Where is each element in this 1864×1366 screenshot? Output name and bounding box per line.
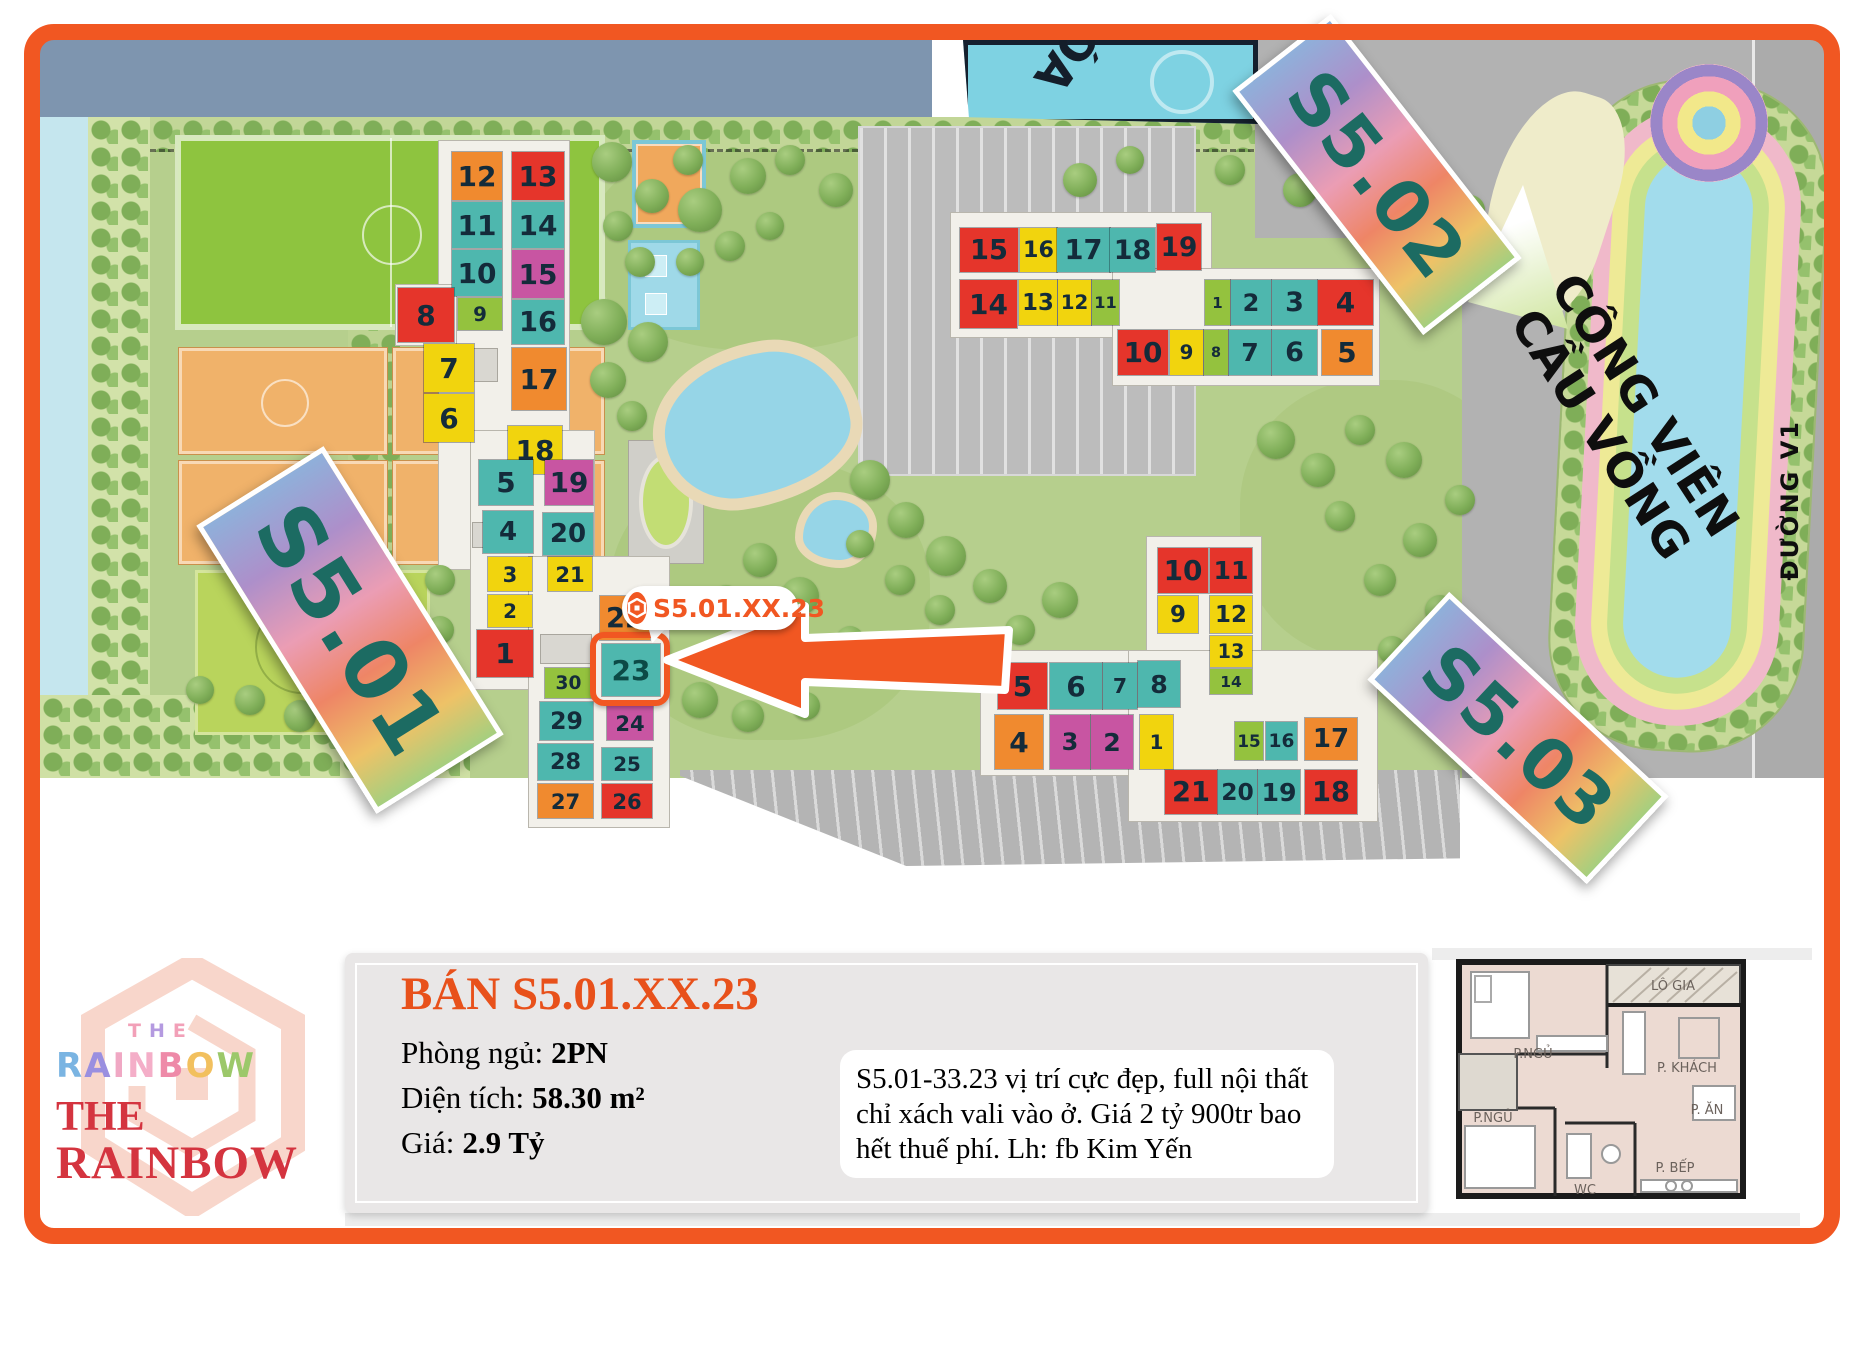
unit-12: 12 <box>1210 596 1252 633</box>
unit-13: 13 <box>1019 280 1057 325</box>
unit-15: 15 <box>1235 722 1263 760</box>
tree-icon <box>730 158 766 194</box>
tree-icon <box>678 188 722 232</box>
spec-price-value: 2.9 Tỷ <box>462 1125 544 1160</box>
unit-10: 10 <box>1158 548 1208 593</box>
unit-28: 28 <box>538 744 593 780</box>
school-logo-circle <box>1150 50 1214 114</box>
unit-3: 3 <box>1050 715 1090 769</box>
listing-title: BÁN S5.01.XX.23 <box>401 967 759 1021</box>
tree-icon <box>1325 501 1355 531</box>
logo-letter: O <box>186 1046 217 1086</box>
logo-the-big: THE <box>56 1096 145 1138</box>
flyer-root: ĐƯỜNG V1 ÓA 33 T <box>0 0 1864 1366</box>
unit-18: 18 <box>1110 228 1155 272</box>
spec-bedrooms-label: Phòng ngủ: <box>401 1035 543 1070</box>
tree-icon <box>676 248 704 276</box>
tree-icon <box>1301 453 1335 487</box>
unit-7: 7 <box>1103 663 1137 709</box>
tree-icon <box>819 173 853 207</box>
room-label-dining: P. ĂN <box>1691 1102 1724 1118</box>
unit-17: 17 <box>512 348 566 410</box>
unit-1: 1 <box>477 630 533 677</box>
unit-14: 14 <box>1210 669 1252 694</box>
tree-icon <box>1445 485 1475 515</box>
unit-3: 3 <box>488 557 532 591</box>
unit-1: 1 <box>1205 280 1230 325</box>
tree-icon <box>888 502 924 538</box>
pool-cell <box>645 293 667 315</box>
top-road-bar <box>40 40 932 117</box>
logo-letter: A <box>84 1046 112 1086</box>
unit-16: 16 <box>512 300 564 344</box>
unit-14: 14 <box>960 280 1017 328</box>
unit-12: 12 <box>1058 280 1091 325</box>
unit-4: 4 <box>1318 280 1373 325</box>
unit-7: 7 <box>1229 330 1271 375</box>
unit-30: 30 <box>545 668 592 698</box>
tree-icon <box>1345 415 1375 445</box>
tree-icon <box>590 362 626 398</box>
unit-2: 2 <box>1091 715 1133 769</box>
road-v1-label: ĐƯỜNG V1 <box>1776 420 1804 581</box>
unit-6: 6 <box>1272 330 1317 375</box>
logo-rainbow-small: RAINBOW <box>56 1046 256 1086</box>
unit-callout: S5.01.XX.23 <box>622 586 798 630</box>
logo-letter: I <box>113 1046 128 1086</box>
tree-icon <box>628 322 668 362</box>
building-core <box>470 348 498 382</box>
unit-14: 14 <box>512 202 564 248</box>
unit-1: 1 <box>1140 715 1173 769</box>
tree-icon <box>1063 163 1097 197</box>
logo-letter: E <box>173 1020 194 1042</box>
unit-17: 17 <box>1305 718 1357 760</box>
logo-rainbow-big: RAINBOW <box>56 1140 298 1187</box>
tree-icon <box>235 685 265 715</box>
unit-11: 11 <box>1210 548 1252 593</box>
tree-icon <box>603 211 633 241</box>
room-label-balcony: LÔ GIA <box>1651 978 1695 994</box>
spec-price: Giá:2.9 Tỷ <box>401 1125 545 1161</box>
spec-area-label: Diện tích: <box>401 1080 524 1115</box>
unit-8: 8 <box>398 288 454 342</box>
spec-area-value: 58.30 m² <box>532 1080 645 1115</box>
tree-icon <box>756 212 784 240</box>
tree-icon <box>592 142 632 182</box>
listing-panel: BÁN S5.01.XX.23 Phòng ngủ:2PN Diện tích:… <box>345 953 1428 1213</box>
floorplan: P.NGỦ LÔ GIA P. KHÁCH P. ĂN P.NGỦ WC P. … <box>1455 958 1747 1200</box>
tree-icon <box>617 401 647 431</box>
unit-21: 21 <box>1165 770 1217 814</box>
logo-letter: R <box>56 1046 84 1086</box>
unit-17: 17 <box>1057 228 1110 272</box>
tree-icon <box>926 536 966 576</box>
unit-8: 8 <box>1138 661 1180 707</box>
basketball-court <box>178 347 388 455</box>
listing-description: S5.01-33.23 vị trí cực đẹp, full nội thấ… <box>840 1050 1334 1178</box>
unit-9: 9 <box>1170 330 1203 375</box>
unit-16: 16 <box>1266 722 1297 760</box>
rainbow-logo-badge-icon <box>627 592 647 624</box>
unit-13: 13 <box>512 152 564 200</box>
logo-letter: H <box>149 1020 173 1042</box>
unit-9: 9 <box>1158 596 1198 633</box>
unit-20: 20 <box>1218 770 1257 814</box>
spec-price-label: Giá: <box>401 1125 454 1160</box>
site-map: ĐƯỜNG V1 ÓA 33 T <box>0 0 1864 870</box>
unit-19: 19 <box>545 460 593 505</box>
tree-icon <box>1042 582 1078 618</box>
unit-10: 10 <box>1118 330 1168 375</box>
room-label-bedroom2: P.NGỦ <box>1473 1109 1512 1126</box>
unit-5: 5 <box>1322 330 1372 375</box>
unit-25: 25 <box>602 748 652 780</box>
tree-strip-left <box>88 117 150 778</box>
park-playground <box>1650 64 1768 182</box>
unit-11: 11 <box>1092 280 1119 325</box>
tree-icon <box>775 145 805 175</box>
unit-18: 18 <box>1305 770 1357 814</box>
tree-icon <box>1215 155 1245 185</box>
tree-icon <box>425 565 455 595</box>
tree-icon <box>715 231 745 261</box>
tree-icon <box>625 247 655 277</box>
unit-19: 19 <box>1157 224 1201 270</box>
unit-19: 19 <box>1258 770 1300 814</box>
tree-icon <box>1403 523 1437 557</box>
logo-letter: T <box>128 1020 149 1042</box>
unit-2: 2 <box>1231 280 1271 325</box>
unit-20: 20 <box>543 513 593 555</box>
unit-9: 9 <box>458 298 502 330</box>
unit-16: 16 <box>1020 228 1057 272</box>
tree-icon <box>885 565 915 595</box>
room-label-bedroom1: P.NGỦ <box>1513 1045 1552 1062</box>
logo-letter: B <box>158 1046 186 1086</box>
canal-water <box>40 117 88 737</box>
unit-selected-23: 23 <box>602 644 660 696</box>
spec-bedrooms-value: 2PN <box>551 1035 608 1070</box>
tree-icon <box>635 179 669 213</box>
tree-icon <box>1386 442 1422 478</box>
unit-13: 13 <box>1210 636 1252 667</box>
tree-icon <box>743 543 777 577</box>
unit-4: 4 <box>483 511 533 553</box>
tree-icon <box>850 460 890 500</box>
tree-icon <box>846 530 874 558</box>
unit-26: 26 <box>602 784 652 818</box>
unit-6: 6 <box>1050 663 1102 709</box>
spec-area: Diện tích:58.30 m² <box>401 1080 645 1116</box>
unit-2: 2 <box>488 595 532 627</box>
unit-6: 6 <box>424 394 474 442</box>
spec-bedrooms: Phòng ngủ:2PN <box>401 1035 608 1071</box>
unit-15: 15 <box>512 250 564 298</box>
tree-icon <box>1116 146 1144 174</box>
room-label-kitchen: P. BẾP <box>1655 1159 1694 1176</box>
logo-letter: N <box>127 1046 157 1086</box>
unit-3: 3 <box>1272 280 1317 325</box>
unit-29: 29 <box>540 702 593 740</box>
tree-icon <box>1257 421 1295 459</box>
tree-icon <box>673 145 703 175</box>
logo-letter: W <box>216 1046 256 1086</box>
unit-7: 7 <box>424 344 474 392</box>
logo-the-small: THE <box>128 1020 194 1042</box>
unit-12: 12 <box>452 152 502 200</box>
unit-5: 5 <box>479 460 533 505</box>
tree-icon <box>1364 564 1396 596</box>
unit-24: 24 <box>607 706 653 740</box>
unit-10: 10 <box>452 250 502 296</box>
divider-strip <box>345 1213 1800 1226</box>
callout-text: S5.01.XX.23 <box>653 594 825 623</box>
field-circle <box>362 205 422 265</box>
unit-4: 4 <box>995 715 1043 769</box>
room-label-wc: WC <box>1574 1183 1596 1198</box>
unit-21: 21 <box>548 557 592 591</box>
room-label-living: P. KHÁCH <box>1657 1060 1717 1076</box>
hexagon-icon <box>627 598 647 618</box>
tree-icon <box>186 676 214 704</box>
building-core <box>540 634 592 664</box>
unit-27: 27 <box>538 784 593 818</box>
unit-8: 8 <box>1204 330 1228 375</box>
unit-11: 11 <box>452 202 502 248</box>
tree-icon <box>581 299 627 345</box>
unit-15: 15 <box>960 228 1018 272</box>
